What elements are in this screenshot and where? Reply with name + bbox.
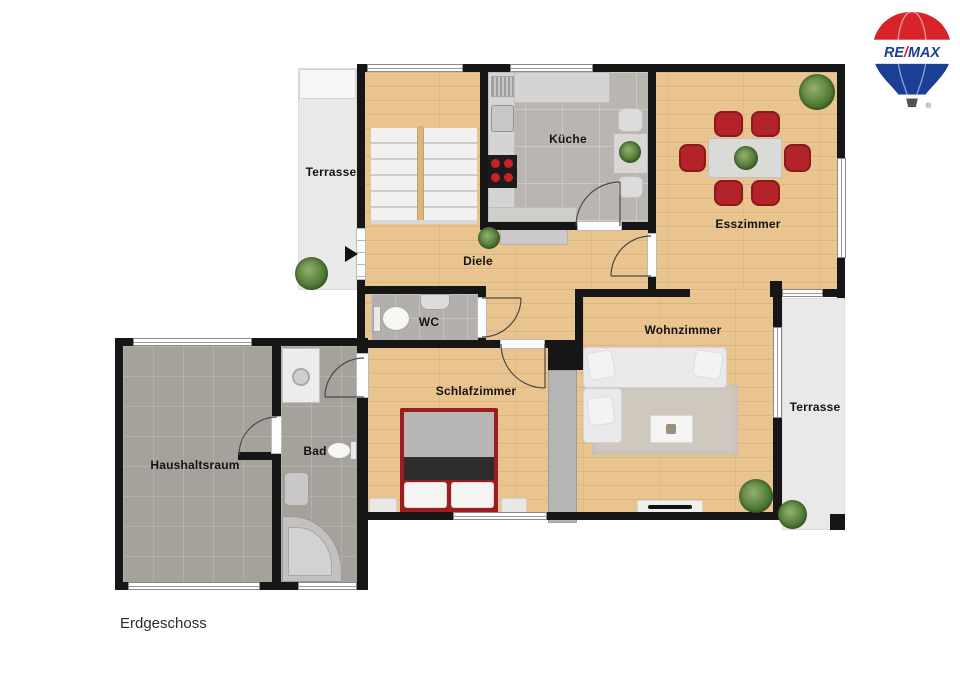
washing-machine-drum (292, 368, 310, 386)
window (298, 582, 357, 590)
kitchen-counter-bottom (488, 207, 577, 222)
door-opening (500, 339, 545, 349)
logo-text-re: RE (884, 45, 904, 61)
hall-sideboard (500, 228, 568, 245)
dining-chair (751, 180, 780, 206)
bed-pillow (404, 482, 447, 508)
stove-burner (491, 173, 500, 182)
sofa-pillow (586, 396, 615, 427)
room-label-terrasse-left: Terrasse (306, 165, 357, 179)
wc-sink (420, 294, 450, 310)
dining-chair (714, 180, 743, 206)
door-opening (271, 416, 282, 454)
logo-text-max: MAX (908, 45, 941, 61)
bath-toilet-tank (350, 441, 357, 460)
room-label-bad: Bad (303, 444, 326, 458)
wall (583, 512, 783, 520)
room-label-terrasse-right: Terrasse (790, 400, 841, 414)
kitchen-chair (618, 176, 643, 198)
remax-balloon-icon: RE/MAX ® (866, 10, 958, 110)
room-label-haushaltsraum: Haushaltsraum (150, 458, 239, 472)
dining-chair (714, 111, 743, 137)
terrace-door-window (782, 289, 823, 297)
wall (480, 64, 488, 230)
stairs-rail (417, 126, 424, 223)
plant (734, 146, 758, 170)
remax-logo: RE/MAX ® (866, 10, 958, 110)
plant (778, 500, 807, 529)
wall (272, 346, 281, 416)
stairs-flight-right (424, 128, 477, 223)
room-label-diele: Diele (463, 254, 493, 268)
sofa-pillow (586, 349, 616, 381)
plant (739, 479, 773, 513)
wall (830, 514, 845, 530)
wc-toilet-bowl (382, 306, 410, 331)
plant (619, 141, 641, 163)
room-label-kueche: Küche (549, 132, 587, 146)
stove-burner (491, 159, 500, 168)
entrance-arrow-icon (345, 246, 358, 262)
dining-chair (679, 144, 706, 172)
coffee-table-deco (666, 424, 676, 434)
window (133, 338, 252, 346)
room-label-schlafzimmer: Schlafzimmer (436, 384, 516, 398)
stove-burner (504, 159, 513, 168)
registered-mark: ® (925, 101, 931, 110)
wall (115, 338, 123, 590)
window (453, 512, 547, 520)
room-label-wohnzimmer: Wohnzimmer (644, 323, 721, 337)
plant (295, 257, 328, 290)
bed-runner (404, 457, 494, 480)
stove-burner (504, 173, 513, 182)
wall (823, 289, 845, 297)
kitchen-sink (491, 105, 514, 132)
door-opening (577, 221, 622, 231)
wardrobe (548, 370, 577, 523)
wc-toilet-tank (373, 306, 381, 332)
room-label-wc: WC (419, 315, 439, 329)
window (128, 582, 260, 590)
dining-chair (751, 111, 780, 137)
kitchen-vent-grill (491, 76, 514, 97)
bath-sink (284, 472, 309, 506)
window (367, 64, 463, 72)
sofa-pillow (692, 349, 724, 380)
bath-toilet-bowl (327, 442, 351, 459)
dining-chair (784, 144, 811, 172)
terrace-door-window (773, 327, 782, 418)
tv-screen (648, 505, 692, 509)
wall (357, 64, 365, 228)
window (510, 64, 593, 72)
wall (580, 289, 690, 297)
room-label-esszimmer: Esszimmer (715, 217, 780, 231)
wall (545, 340, 583, 348)
floorplan-page: Terrasse Küche Esszimmer Diele WC Wohnzi… (0, 0, 960, 679)
wall (770, 281, 782, 297)
plant (478, 227, 500, 249)
svg-text:RE/MAX: RE/MAX (884, 45, 941, 61)
bed-pillow (451, 482, 494, 508)
plant (799, 74, 835, 110)
wall (773, 297, 782, 327)
terrace-right-area (782, 298, 845, 530)
wall (272, 452, 281, 582)
door-opening (477, 297, 487, 338)
door-opening (647, 233, 657, 277)
balloon-basket-icon (906, 98, 918, 107)
floor-title: Erdgeschoss (120, 615, 207, 632)
wall (363, 286, 486, 294)
stairs-bottom-edge (371, 220, 477, 224)
stairs-flight-left (371, 128, 417, 223)
door-opening (356, 353, 369, 398)
kitchen-chair (618, 108, 643, 132)
terrace-left-step (299, 69, 356, 99)
bed-blanket (404, 412, 494, 457)
window (837, 158, 846, 258)
